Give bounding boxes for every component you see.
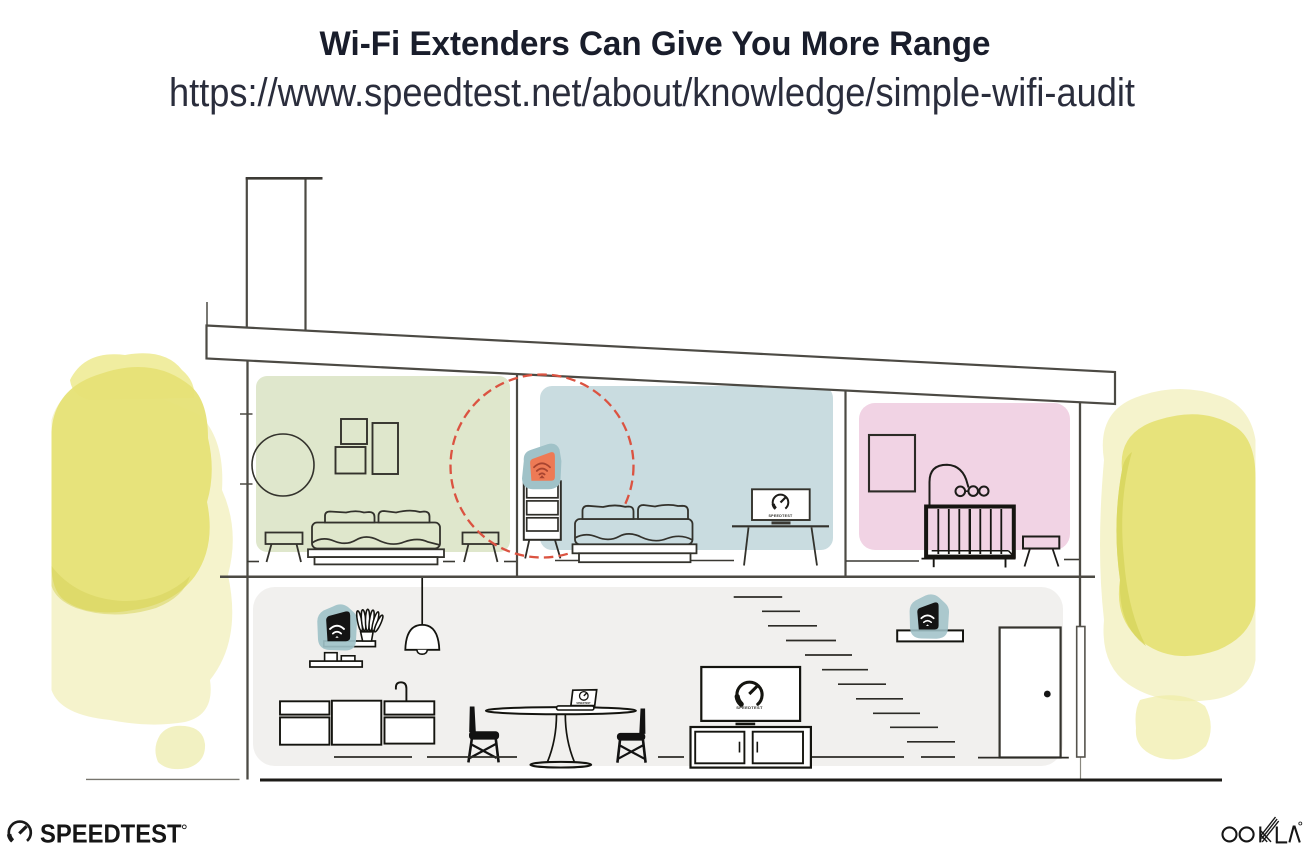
svg-text:SPEEDTEST: SPEEDTEST	[736, 705, 763, 710]
svg-text:https://www.speedtest.net/abou: https://www.speedtest.net/about/knowledg…	[169, 71, 1135, 115]
svg-text:SPEEDTEST: SPEEDTEST	[768, 514, 793, 518]
svg-text:SPEEDTEST: SPEEDTEST	[576, 702, 591, 705]
svg-text:Wi-Fi Extenders Can Give You M: Wi-Fi Extenders Can Give You More Range	[320, 25, 991, 63]
svg-text:SPEEDTEST: SPEEDTEST	[40, 821, 182, 849]
